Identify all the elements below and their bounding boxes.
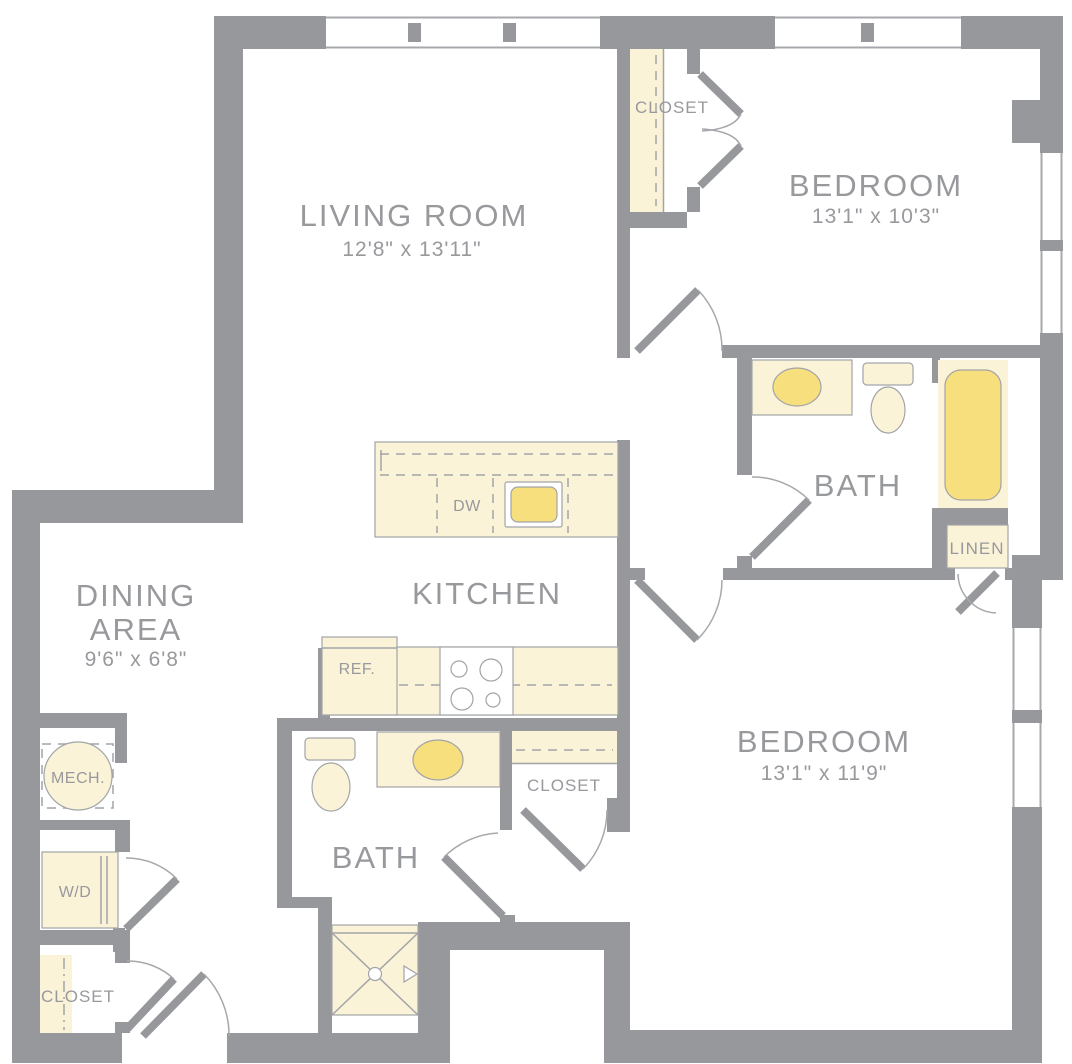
door-swing xyxy=(637,290,722,351)
bath-top-label: BATH xyxy=(814,468,902,503)
entry-door-swing xyxy=(143,974,229,1036)
door-swing xyxy=(127,961,174,1029)
stove xyxy=(440,647,513,715)
shower-drain xyxy=(369,968,382,981)
door-swing xyxy=(126,858,177,929)
toilet xyxy=(305,738,355,811)
kitchen-sink xyxy=(505,482,562,527)
bedroom-bottom-dimensions: 13'1" x 11'9" xyxy=(761,762,888,785)
closet-top-label: CLOSET xyxy=(635,98,709,117)
window xyxy=(326,18,600,48)
closet-hall-label: CLOSET xyxy=(527,776,601,795)
refrigerator-label: REF. xyxy=(339,661,376,678)
bathtub xyxy=(938,360,1008,508)
bathroom-vanity xyxy=(377,732,500,787)
living-room-dimensions: 12'8" x 13'11" xyxy=(342,238,481,261)
door-swing xyxy=(752,477,809,557)
shower xyxy=(332,925,418,1015)
closet-shelf xyxy=(512,731,617,764)
window xyxy=(1040,153,1063,333)
dining-area-label-line1: DINING xyxy=(76,578,197,613)
dishwasher-label: DW xyxy=(453,498,481,515)
bedroom-bottom-label: BEDROOM xyxy=(737,724,911,759)
dining-area-dimensions: 9'6" x 6'8" xyxy=(85,648,188,671)
closet-rod xyxy=(630,49,664,212)
bath-bottom-label: BATH xyxy=(332,840,420,875)
kitchen-label: KITCHEN xyxy=(412,576,562,611)
bathroom-vanity xyxy=(752,360,852,415)
window xyxy=(1012,628,1042,807)
door-swing xyxy=(637,580,722,640)
dining-area-label-line2: AREA xyxy=(90,612,182,647)
bedroom-top-dimensions: 13'1" x 10'3" xyxy=(812,205,940,228)
door-swing xyxy=(444,833,503,916)
floor-plan: LIVING ROOM 12'8" x 13'11" BEDROOM 13'1"… xyxy=(0,0,1072,1064)
door-swing xyxy=(958,573,997,613)
mechanical-label: MECH. xyxy=(51,770,105,787)
bedroom-top-label: BEDROOM xyxy=(789,168,963,203)
door-swing xyxy=(523,810,607,869)
living-room-label: LIVING ROOM xyxy=(300,198,529,233)
laundry-label: W/D xyxy=(59,884,92,901)
closet-entry-label: CLOSET xyxy=(41,987,115,1006)
window xyxy=(775,18,961,48)
bifold-door xyxy=(700,74,741,186)
kitchen-counter xyxy=(375,442,618,537)
toilet xyxy=(863,363,913,433)
linen-label: LINEN xyxy=(949,539,1004,558)
